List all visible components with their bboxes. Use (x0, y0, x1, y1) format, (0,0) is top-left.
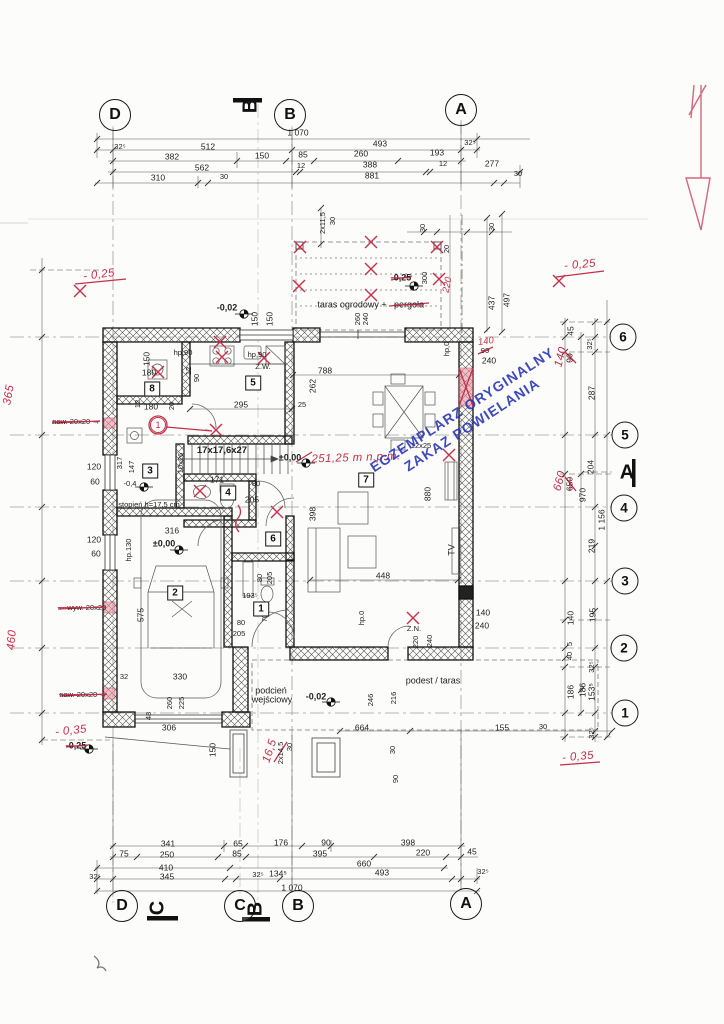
section-markers: BCBA (0, 0, 724, 1024)
section-marker: A (620, 462, 634, 485)
section-marker: B (245, 902, 268, 916)
floorplan-page: 1 07032⁵51249332⁵38215085260193562123881… (0, 0, 724, 1024)
section-marker: C (147, 901, 170, 915)
section-marker: B (240, 99, 263, 113)
